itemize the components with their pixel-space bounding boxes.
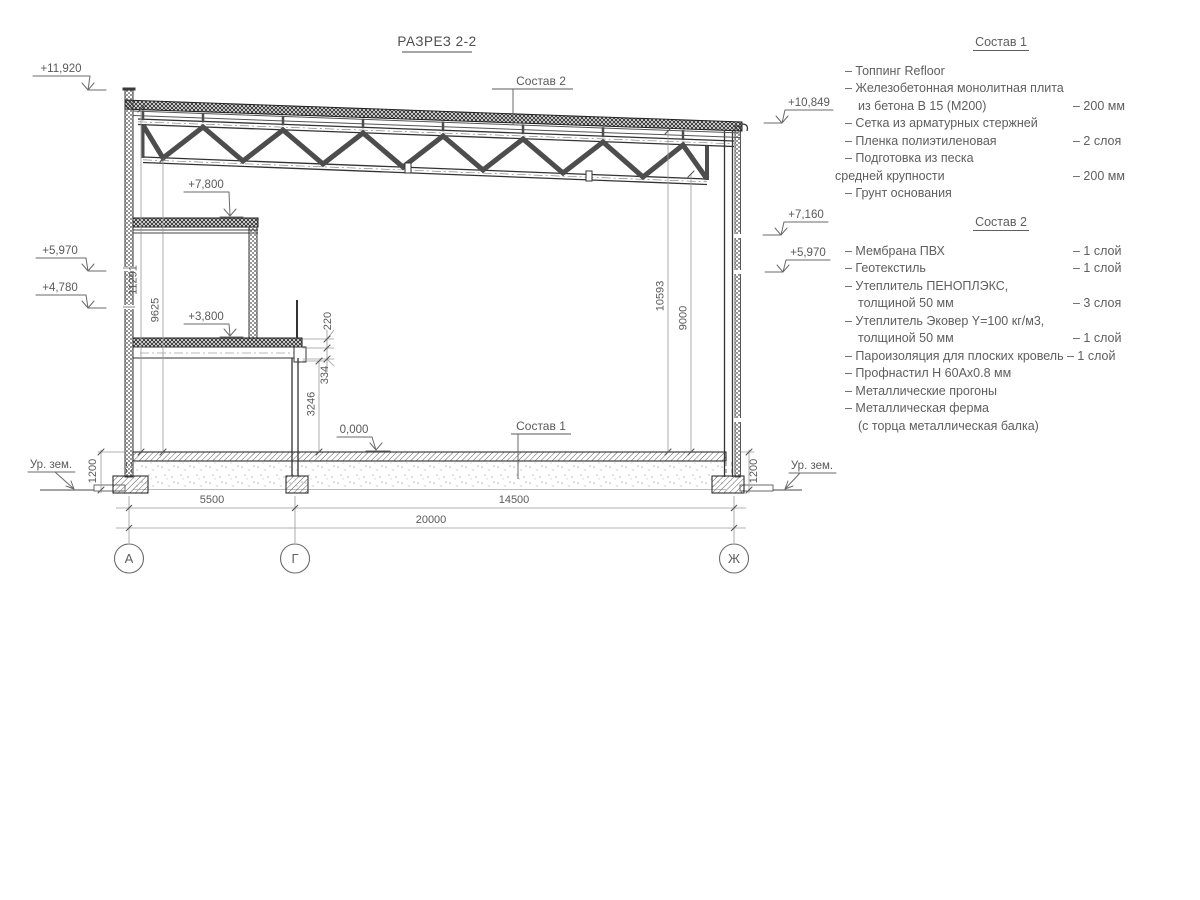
ground-level-mark-left: Ур. зем. — [28, 459, 75, 489]
elevation-mark-10849: +10,849 — [764, 97, 833, 123]
mezzanine — [133, 218, 306, 476]
grid-axis-label-zh: Ж — [728, 551, 740, 566]
elevation-mark-0000: 0,000 — [337, 424, 390, 451]
spec-item: – Сетка из арматурных стержней — [845, 115, 1157, 133]
roof — [125, 100, 747, 138]
spec-item: – Металлическая ферма — [845, 400, 1157, 418]
dim-label-11291: 11291 — [128, 265, 140, 295]
dim-label-220: 220 — [322, 312, 334, 330]
svg-text:+10,849: +10,849 — [788, 97, 830, 109]
callout-sostav1: Состав 1 — [516, 419, 566, 433]
elevation-mark-7160: +7,160 — [763, 209, 828, 235]
spec2-title: Состав 2 — [845, 214, 1157, 232]
elevation-mark-3800: +3,800 — [184, 311, 243, 337]
footing-axis-zh — [712, 476, 744, 493]
svg-text:+7,160: +7,160 — [788, 209, 824, 221]
spec-item: – Утеплитель Эковер Y=100 кг/м3, — [845, 313, 1157, 331]
mezzanine-slab-7800 — [133, 218, 258, 227]
dim-label-20000: 20000 — [416, 514, 447, 526]
mezzanine-slab-3800 — [133, 338, 302, 347]
spec-item: из бетона В 15 (М200)– 200 мм — [845, 98, 1157, 116]
footing-axis-g — [286, 476, 308, 493]
dim-label-1200-left: 1200 — [87, 459, 99, 483]
apron-right — [740, 485, 773, 491]
spec-list-sostav2: Состав 2 – Мембрана ПВХ– 1 слой – Геотек… — [845, 214, 1157, 435]
footing-axis-a — [113, 476, 148, 493]
dim-label-334: 334 — [319, 366, 331, 384]
spec-item: средней крупности– 200 мм — [835, 168, 1157, 186]
drawing-sheet: 11291 9625 10593 9000 3246 220 334 1200 … — [0, 0, 1200, 900]
chord-splice — [586, 171, 592, 181]
dim-label-3246: 3246 — [306, 392, 318, 416]
svg-text:Ур. зем.: Ур. зем. — [30, 459, 72, 471]
left-parapet-cap — [123, 88, 136, 91]
spec-item: – Пароизоляция для плоских кровель– 1 сл… — [845, 348, 1157, 366]
roof-drip-edge — [742, 124, 747, 131]
chord-splice — [405, 163, 411, 173]
svg-text:+7,800: +7,800 — [188, 179, 224, 191]
svg-text:+5,970: +5,970 — [790, 247, 826, 259]
grid-axis-label-a: А — [125, 551, 134, 566]
spec-item: – Геотекстиль– 1 слой — [845, 260, 1157, 278]
elevation-mark-5970-right: +5,970 — [765, 247, 830, 272]
svg-text:+3,800: +3,800 — [188, 311, 224, 323]
dim-label-10593: 10593 — [655, 281, 667, 312]
spec-list-sostav1: Состав 1 – Топпинг Refloor – Железобетон… — [845, 34, 1157, 203]
spec-item: – Железобетонная монолитная плита — [845, 80, 1157, 98]
elevation-mark-11920: +11,920 — [33, 63, 106, 90]
horizontal-dimensions: 5500 14500 20000 А Г Ж — [115, 494, 749, 573]
spec-item: – Пленка полиэтиленовая– 2 слоя — [845, 133, 1157, 151]
right-wall-panel — [735, 126, 741, 477]
svg-text:+5,970: +5,970 — [42, 245, 78, 257]
dim-label-5500: 5500 — [200, 494, 224, 506]
spec-item: – Топпинг Refloor — [845, 63, 1157, 81]
spec-item: – Утеплитель ПЕНОПЛЭКС, — [845, 278, 1157, 296]
drawing-title: РАЗРЕЗ 2-2 — [397, 34, 476, 52]
svg-text:0,000: 0,000 — [340, 424, 369, 436]
spec-item: – Грунт основания — [845, 185, 1157, 203]
dim-label-1200-right: 1200 — [748, 459, 760, 483]
spec-item: – Металлические прогоны — [845, 383, 1157, 401]
page-title: РАЗРЕЗ 2-2 — [397, 34, 476, 49]
spec-item: толщиной 50 мм– 1 слой — [845, 330, 1157, 348]
svg-text:+4,780: +4,780 — [42, 282, 78, 294]
dim-label-9625: 9625 — [150, 298, 162, 322]
callout-sostav2: Состав 2 — [516, 74, 566, 88]
spec-item: толщиной 50 мм– 3 слоя — [845, 295, 1157, 313]
spec-item: – Подготовка из песка — [845, 150, 1157, 168]
mezzanine-wall — [249, 227, 257, 338]
spec-item: – Мембрана ПВХ– 1 слой — [845, 243, 1157, 261]
dim-label-14500: 14500 — [499, 494, 530, 506]
grid-axis-label-g: Г — [291, 551, 298, 566]
ground-level-mark-right: Ур. зем. — [785, 460, 836, 489]
spec-item: (с торца металлическая балка) — [845, 418, 1157, 436]
elevation-mark-7800: +7,800 — [184, 179, 243, 217]
beam-end-bracket — [294, 347, 306, 362]
elevation-mark-5970-left: +5,970 — [36, 245, 106, 271]
dim-label-9000: 9000 — [678, 306, 690, 330]
elevation-mark-4780: +4,780 — [36, 282, 106, 308]
mezzanine-beam — [133, 347, 302, 358]
floor-and-ground — [40, 452, 802, 493]
spec1-title: Состав 1 — [845, 34, 1157, 52]
svg-text:Ур. зем.: Ур. зем. — [791, 460, 833, 472]
svg-text:+11,920: +11,920 — [40, 63, 81, 75]
floor-slab — [133, 452, 726, 461]
spec-item: – Профнастил Н 60Ах0.8 мм — [845, 365, 1157, 383]
sand-bed — [133, 461, 726, 489]
